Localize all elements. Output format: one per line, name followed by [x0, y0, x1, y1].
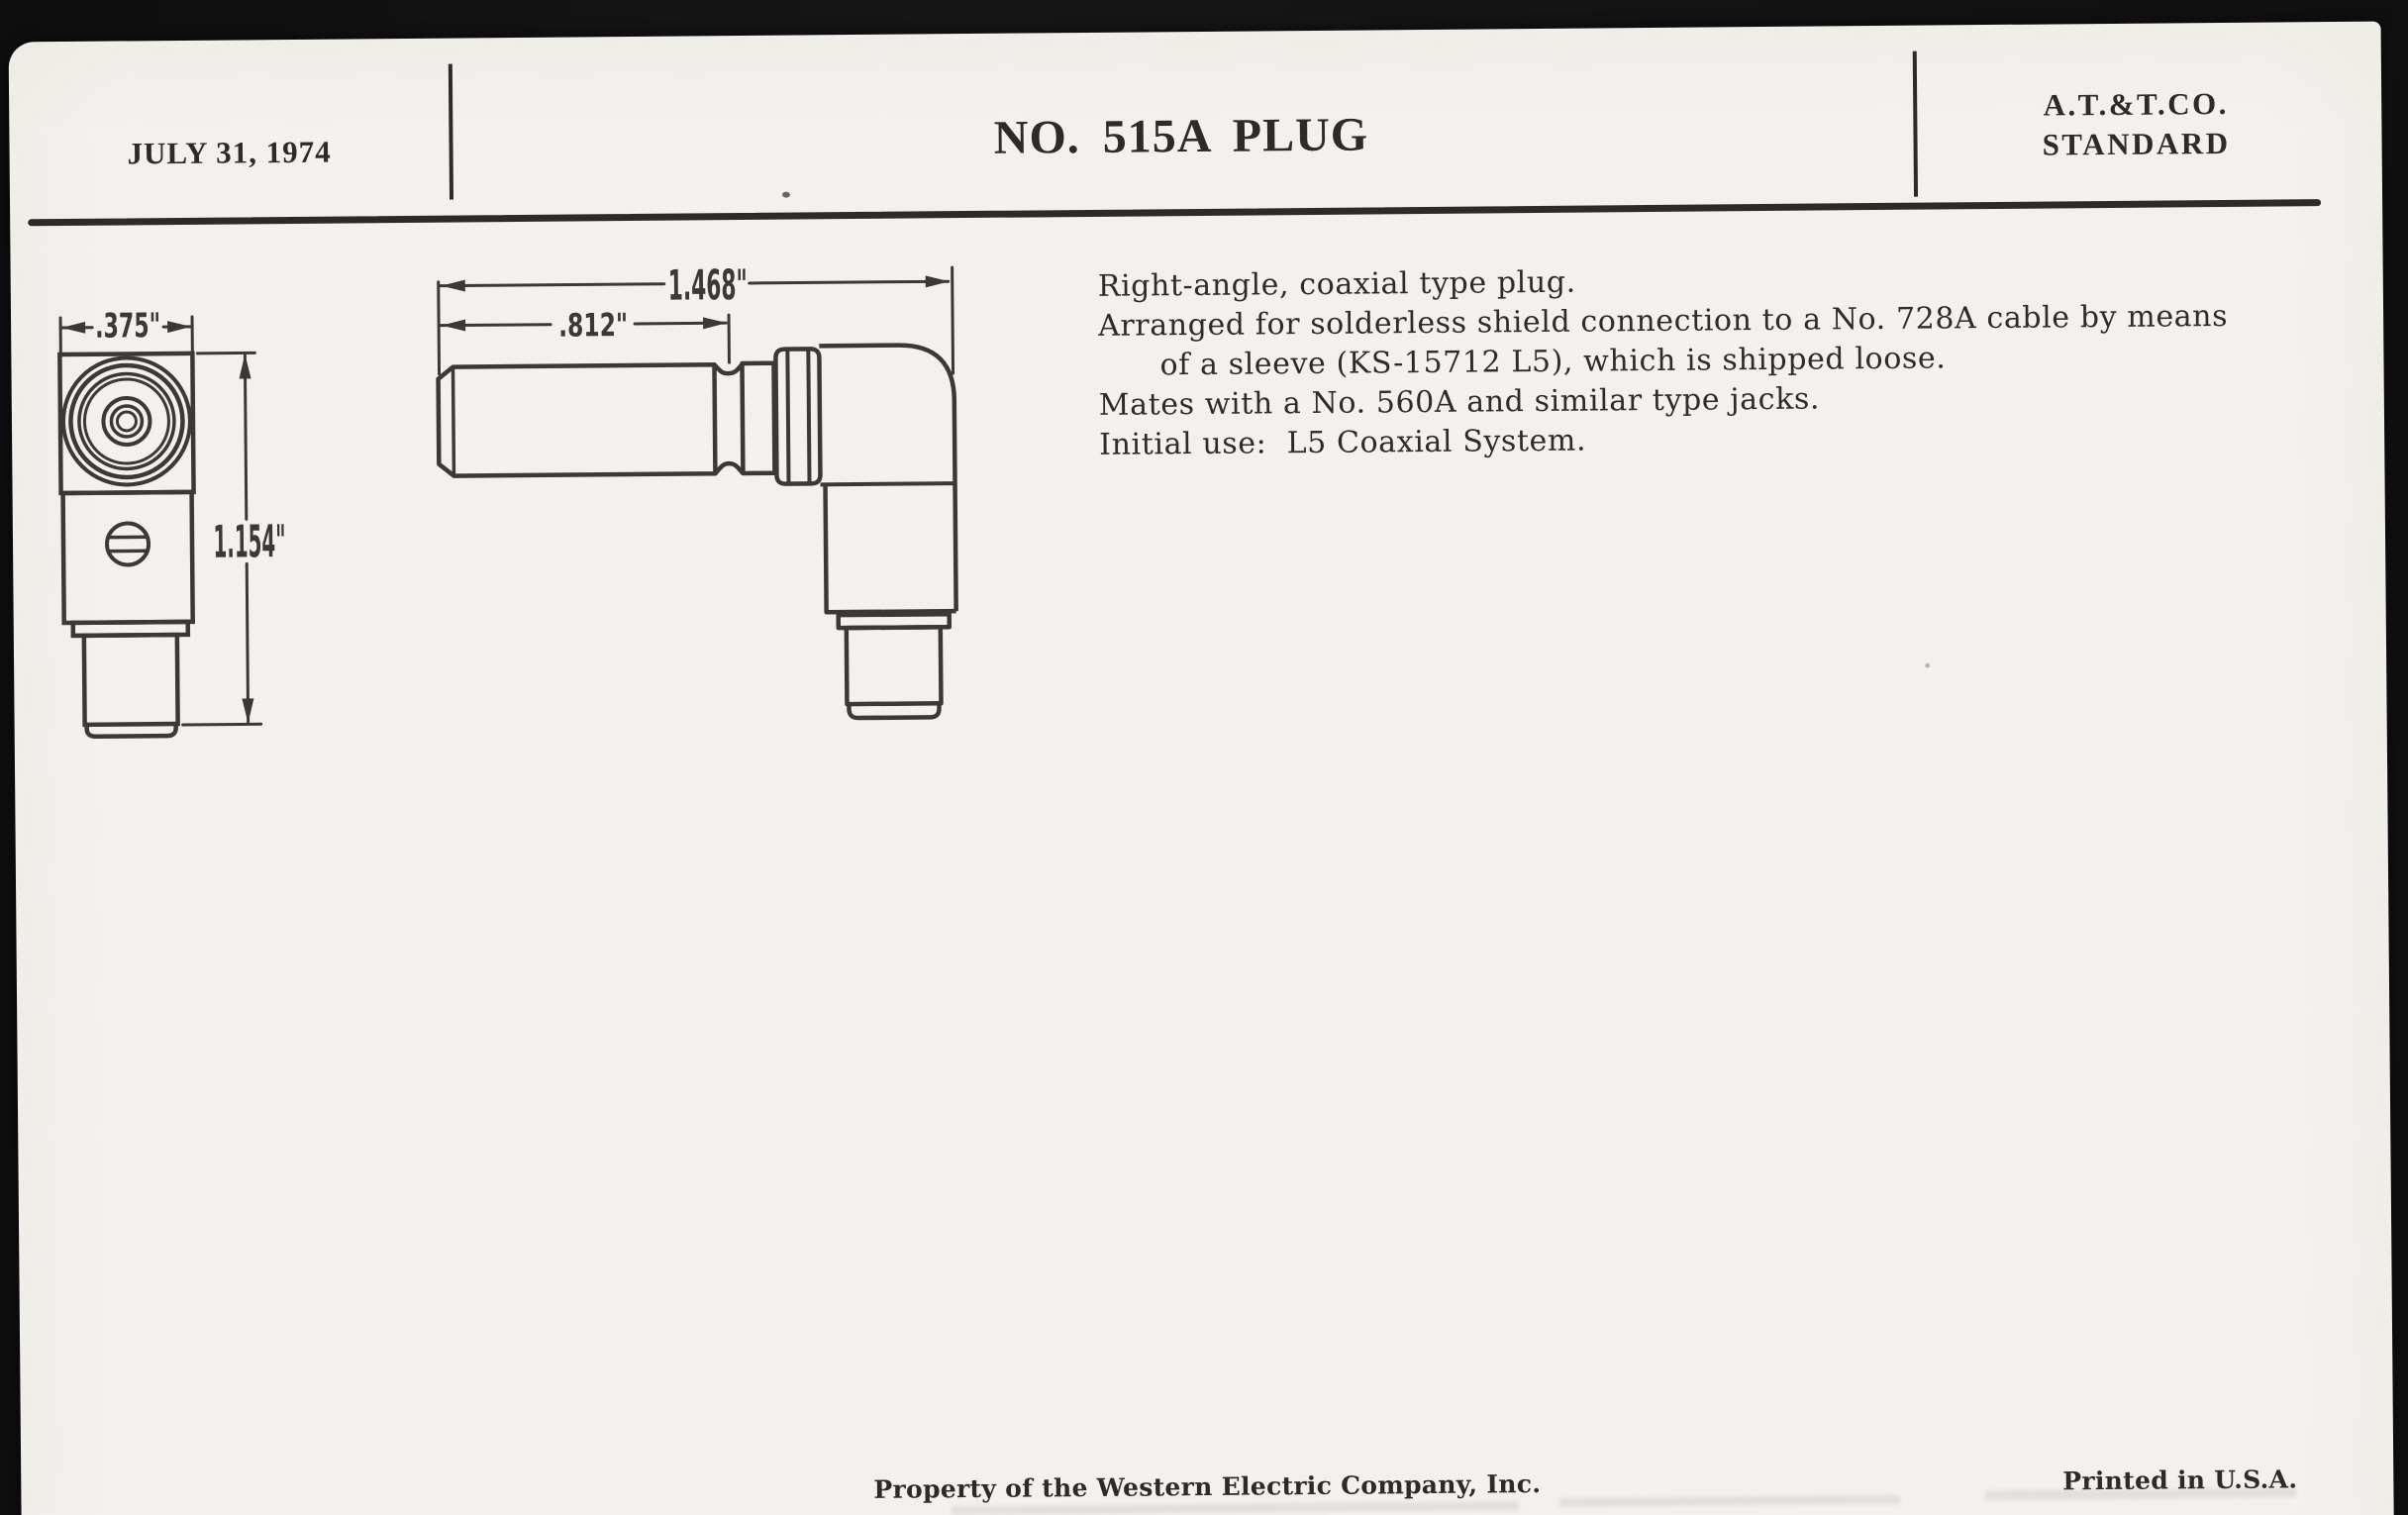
- standard-label: A.T.&T.CO. STANDARD: [1912, 83, 2360, 166]
- scan-speck: [782, 192, 790, 198]
- front-view-drawing: .375" 1.154": [41, 307, 342, 765]
- page-title: NO. 515A PLUG: [450, 107, 1912, 167]
- mounting-screw: [107, 523, 149, 564]
- connector-face: [59, 353, 193, 493]
- header-rule: [28, 199, 2321, 226]
- side-overall-length-dimension-label: 1.468": [668, 260, 748, 310]
- standard-label-line2: STANDARD: [1912, 123, 2359, 166]
- plug-elbow-body: [819, 345, 955, 612]
- connector-stem-front: [73, 622, 189, 737]
- front-height-dimension: 1.154": [179, 353, 287, 725]
- front-height-dimension-label: 1.154": [213, 515, 285, 568]
- scan-smudge: [1984, 1487, 2296, 1500]
- date-label: JULY 31, 1974: [9, 134, 449, 173]
- side-view-drawing: 1.468" .812": [427, 252, 985, 732]
- plug-collar-rings: [775, 349, 820, 483]
- side-overall-length-dimension: 1.468": [439, 258, 953, 378]
- front-width-dimension: .375": [60, 307, 192, 353]
- plug-barrel: [438, 363, 774, 476]
- scan-background: JULY 31, 1974 NO. 515A PLUG A.T.&T.CO. S…: [0, 0, 2408, 1515]
- standard-label-line1: A.T.&T.CO.: [1912, 83, 2359, 127]
- document-page: JULY 31, 1974 NO. 515A PLUG A.T.&T.CO. S…: [9, 22, 2395, 1515]
- side-barrel-length-dimension: .812": [441, 305, 729, 365]
- front-width-dimension-label: .375": [95, 307, 160, 347]
- scan-smudge: [1558, 1495, 1900, 1507]
- description: Right-angle, coaxial type plug. Arranged…: [1098, 256, 2348, 465]
- connector-body-front: [63, 492, 193, 623]
- scan-speck: [1925, 663, 1930, 668]
- plug-stem-side: [839, 614, 951, 718]
- side-barrel-length-dimension-label: .812": [558, 306, 628, 345]
- scan-smudge: [951, 1501, 1520, 1515]
